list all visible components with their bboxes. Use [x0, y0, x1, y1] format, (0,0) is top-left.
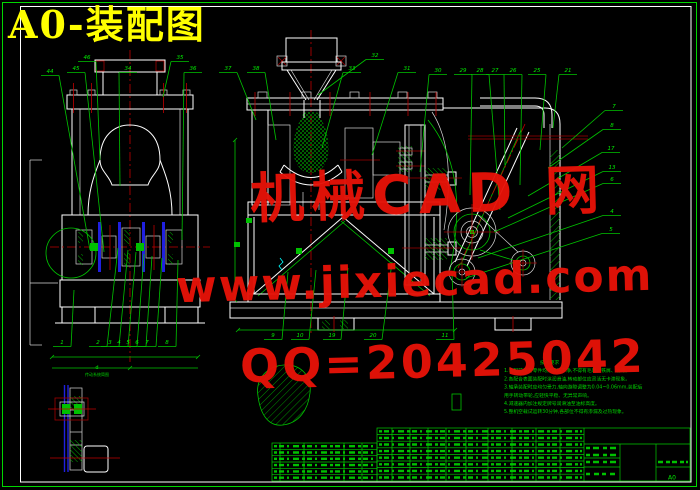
balloon-number: 4 [610, 209, 614, 215]
cad-viewport[interactable]: 4445463435363738333231302928272625217817… [0, 0, 700, 490]
balloon-number: 5 [126, 340, 130, 346]
balloon-number: 29 [460, 68, 467, 74]
balloon-number: 36 [190, 66, 197, 72]
balloon-number: 27 [492, 68, 499, 74]
balloon-number: 33 [349, 66, 356, 72]
balloon-number: 21 [565, 68, 572, 74]
balloon-number: 6 [610, 177, 614, 183]
balloon-number: 38 [253, 66, 260, 72]
balloon-number: 17 [608, 146, 615, 152]
balloon-number: 26 [510, 68, 517, 74]
balloon-number: 32 [372, 53, 379, 59]
balloon-number: 25 [534, 68, 541, 74]
balloon-number: 8 [610, 123, 614, 129]
balloon-number: 13 [609, 165, 616, 171]
balloon-number: 34 [125, 66, 132, 72]
assembly-drawing-canvas: 4445463435363738333231302928272625217817… [0, 0, 700, 490]
watermark-site-name: 机械CAD 网 [249, 145, 607, 233]
balloon-number: 3 [108, 340, 112, 346]
balloon-number: 4 [117, 340, 121, 346]
balloon-number: 6 [135, 340, 139, 346]
balloon-number: 30 [435, 68, 442, 74]
watermark-qq: QQ=20425042 [239, 329, 646, 394]
balloon-number: 45 [73, 66, 80, 72]
balloon-number: 5 [609, 227, 613, 233]
detail-caption: 传动系统简图 [85, 371, 109, 377]
note-line: 5.整机空载试运转30分钟,各部位不得有渗漏及过热现象。 [504, 408, 627, 415]
balloon-number: 35 [177, 55, 184, 61]
title-block: A0 [272, 428, 690, 482]
balloon-number: 7 [145, 340, 149, 346]
note-line: 4.减速器内加注规定牌号润滑油至油标高度。 [504, 400, 600, 407]
balloon-number: 31 [404, 66, 411, 72]
balloon-number: 8 [165, 340, 169, 346]
balloon-number: 44 [47, 69, 54, 75]
sheet-size-label: A0 [668, 475, 676, 482]
balloon-number: 37 [225, 66, 232, 72]
left-side-view [30, 50, 210, 370]
balloon-number: 28 [477, 68, 484, 74]
balloon-number: 7 [612, 104, 616, 110]
balloon-number: 2 [96, 340, 100, 346]
balloon-number: 1 [60, 340, 64, 346]
page-title: A0-装配图 [8, 0, 206, 49]
transmission-detail-view [48, 385, 120, 472]
balloon-number: 46 [84, 55, 91, 61]
detail-circle-d [46, 228, 96, 278]
note-line: 用手转动带轮,应轻快平稳、无异常声响。 [504, 392, 592, 399]
detail-letter: d [95, 365, 98, 371]
